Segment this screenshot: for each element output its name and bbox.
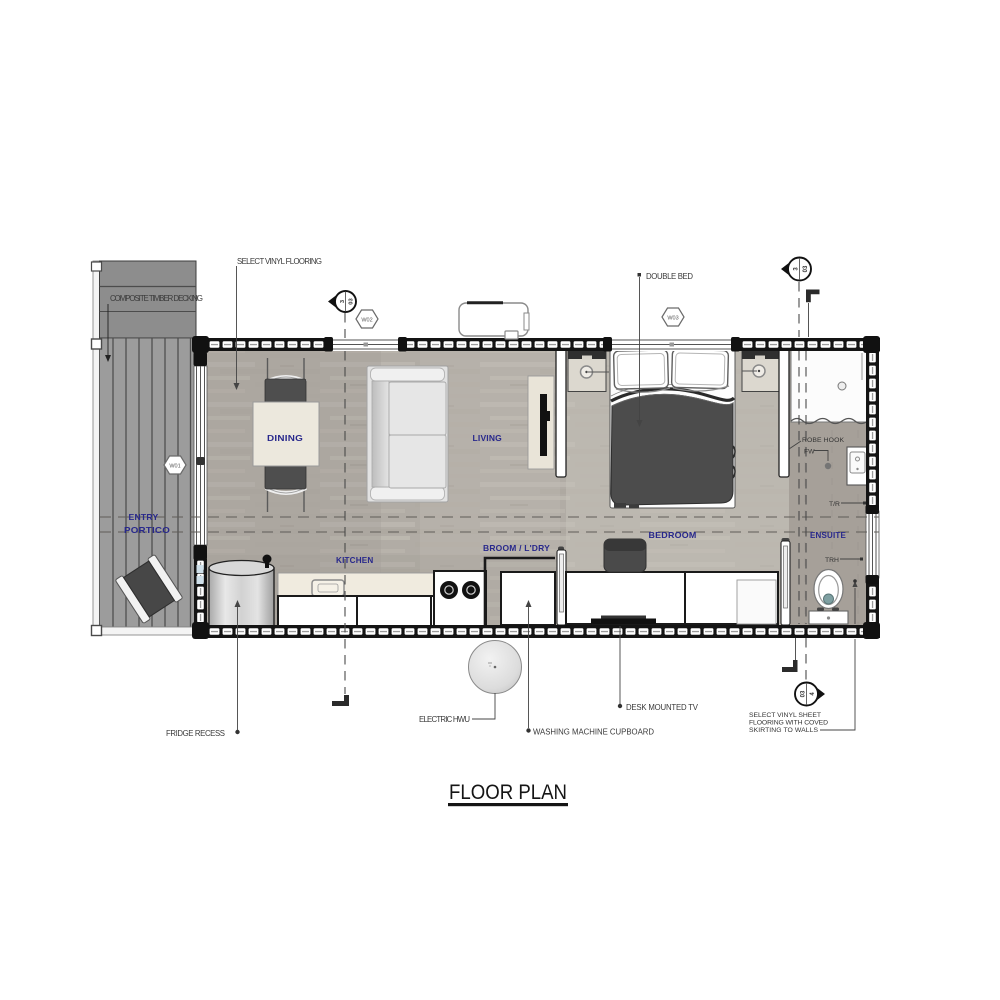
svg-text:03: 03: [801, 690, 807, 697]
svg-text:COMPOSITE TIMBER DECKING: COMPOSITE TIMBER DECKING: [110, 294, 203, 303]
svg-text:ENTRY: ENTRY: [129, 512, 159, 522]
svg-text:T/R: T/R: [829, 501, 840, 508]
svg-text:PORTICO: PORTICO: [124, 525, 170, 535]
svg-text:FRIDGE RECESS: FRIDGE RECESS: [166, 729, 225, 738]
svg-text:WASHING MACHINE CUPBOARD: WASHING MACHINE CUPBOARD: [533, 728, 654, 737]
svg-text:DINING: DINING: [267, 433, 303, 443]
svg-text:FW: FW: [804, 449, 815, 456]
svg-text:W03: W03: [667, 315, 678, 321]
svg-text:SELECT VINYL FLOORING: SELECT VINYL FLOORING: [237, 257, 322, 266]
svg-text:FLOOR PLAN: FLOOR PLAN: [449, 781, 567, 804]
svg-text:FLOORING WITH COVED: FLOORING WITH COVED: [749, 720, 828, 727]
svg-text:BROOM / L'DRY: BROOM / L'DRY: [483, 543, 550, 553]
svg-text:03: 03: [803, 265, 809, 272]
svg-text:ENSUITE: ENSUITE: [810, 530, 846, 540]
svg-text:W01: W01: [169, 463, 180, 469]
svg-text:ELECTRIC HWU: ELECTRIC HWU: [419, 715, 470, 724]
svg-text:SELECT VINYL SHEET: SELECT VINYL SHEET: [749, 712, 821, 719]
svg-text:DESK MOUNTED TV: DESK MOUNTED TV: [626, 703, 699, 712]
svg-text:03: 03: [349, 298, 355, 305]
svg-text:TRH: TRH: [825, 557, 839, 564]
svg-text:KITCHEN: KITCHEN: [336, 555, 374, 565]
svg-text:SKIRTING TO WALLS: SKIRTING TO WALLS: [749, 727, 818, 734]
svg-text:LIVING: LIVING: [473, 433, 503, 443]
svg-text:W02: W02: [361, 317, 372, 323]
svg-text:BEDROOM: BEDROOM: [649, 530, 697, 540]
svg-text:DOUBLE BED: DOUBLE BED: [646, 272, 693, 281]
svg-text:ROBE HOOK: ROBE HOOK: [802, 437, 844, 444]
